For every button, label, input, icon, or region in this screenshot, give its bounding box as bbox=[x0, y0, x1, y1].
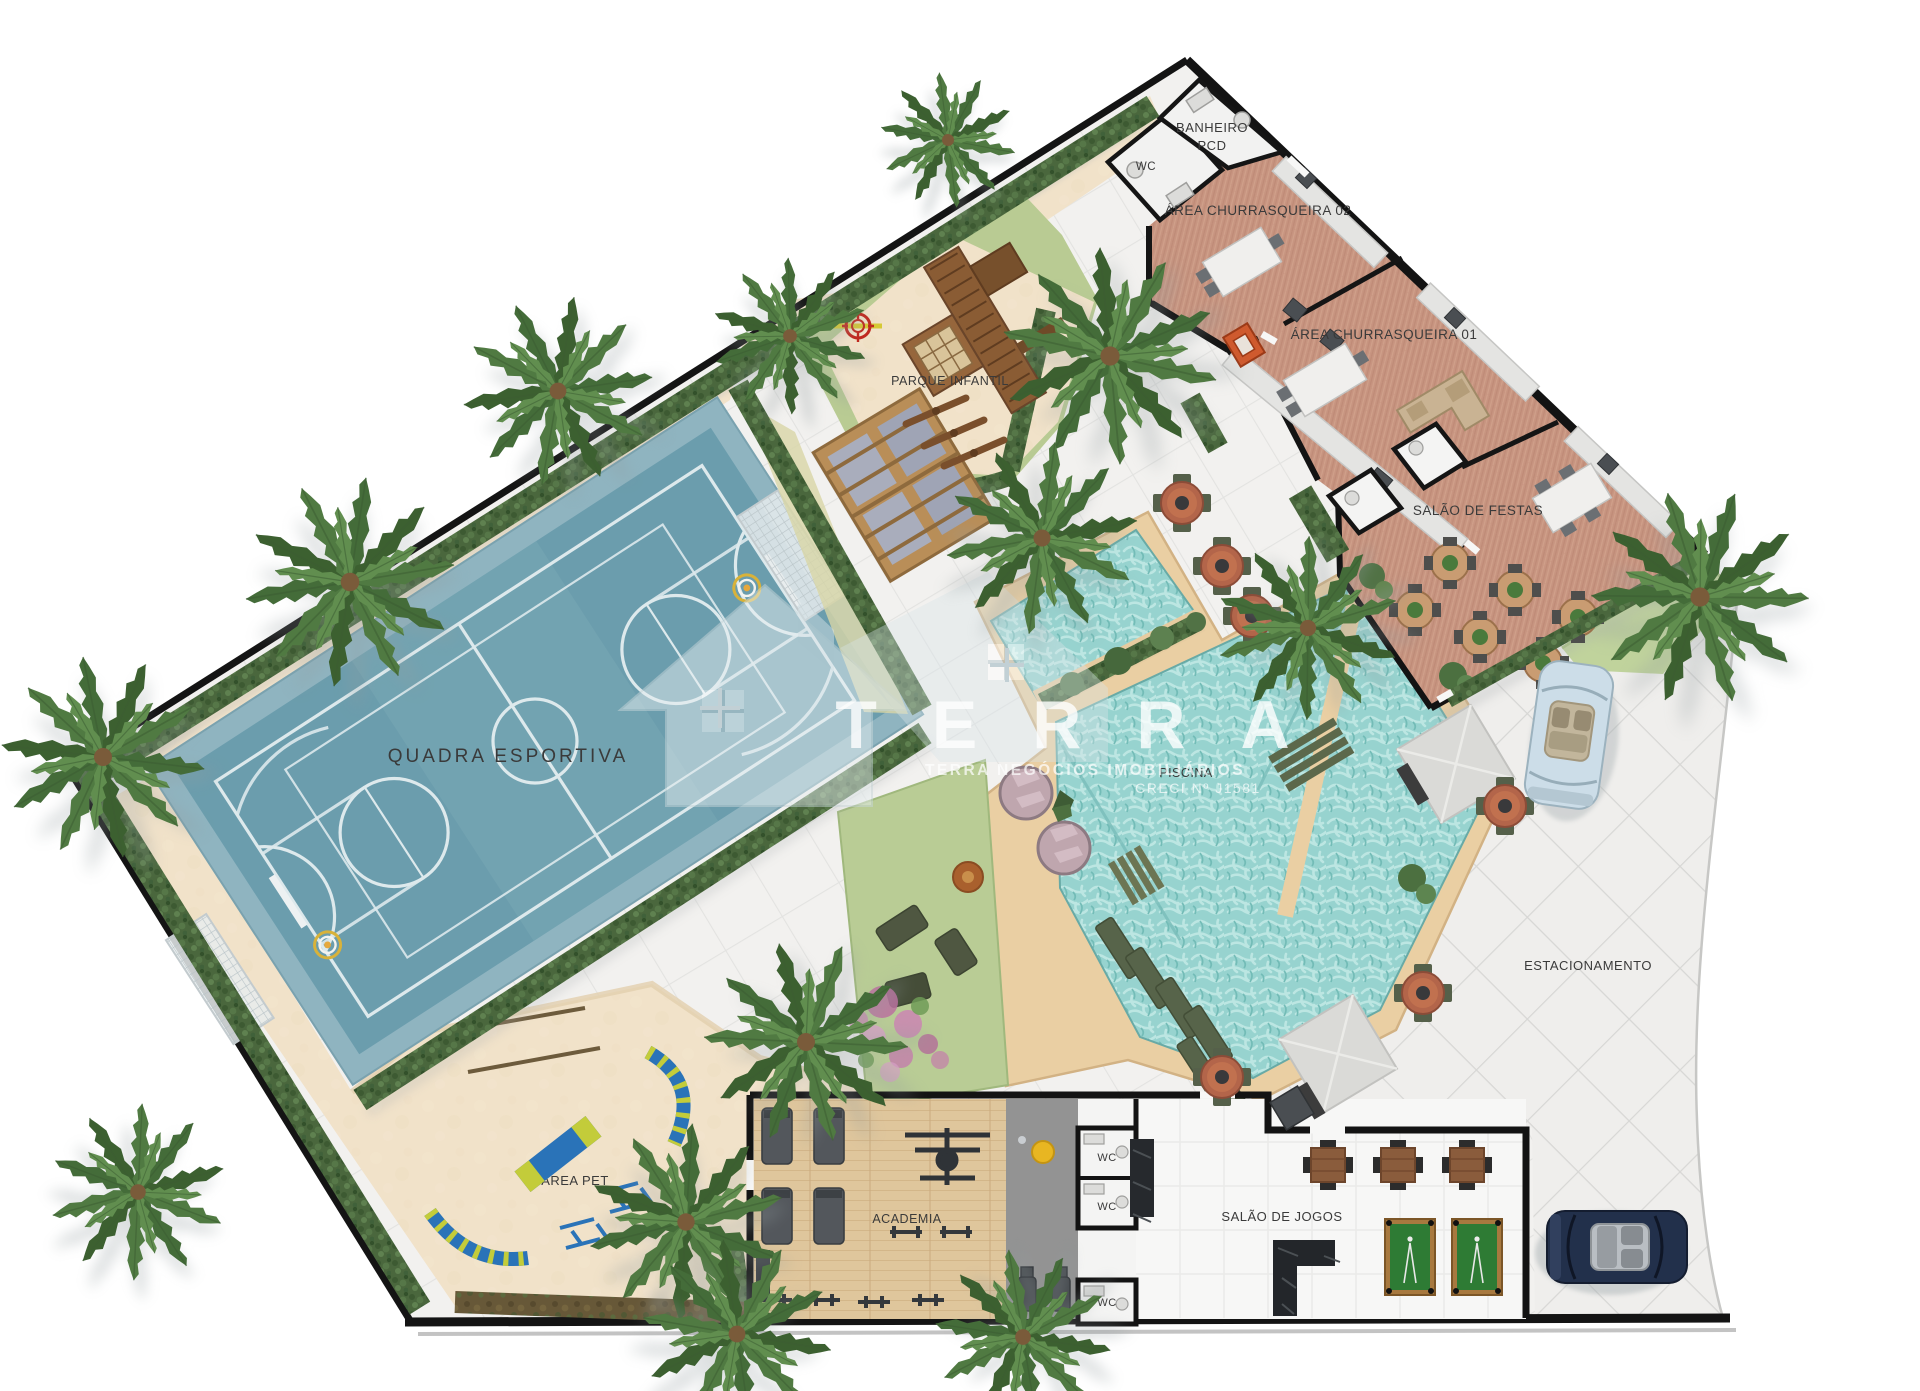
svg-text:CRECI Nº J1581: CRECI Nº J1581 bbox=[1135, 780, 1261, 796]
svg-text:WC: WC bbox=[1136, 161, 1156, 173]
svg-text:ÁREA CHURRASQUEIRA 02: ÁREA CHURRASQUEIRA 02 bbox=[1165, 203, 1352, 218]
svg-text:ÁREA CHURRASQUEIRA 01: ÁREA CHURRASQUEIRA 01 bbox=[1291, 327, 1478, 342]
svg-text:BANHEIRO: BANHEIRO bbox=[1176, 120, 1248, 135]
svg-text:ACADEMIA: ACADEMIA bbox=[872, 1212, 941, 1226]
svg-text:PCD: PCD bbox=[1198, 138, 1227, 153]
svg-text:PARQUE INFANTIL: PARQUE INFANTIL bbox=[891, 374, 1009, 388]
svg-text:WC: WC bbox=[1097, 1201, 1116, 1213]
svg-text:TERRA NEGÓCIOS IMOBILIÁRIOS: TERRA NEGÓCIOS IMOBILIÁRIOS bbox=[925, 761, 1245, 779]
svg-text:WC: WC bbox=[1097, 1297, 1116, 1309]
svg-text:ESTACIONAMENTO: ESTACIONAMENTO bbox=[1524, 958, 1652, 973]
svg-text:TERRA: TERRA bbox=[835, 687, 1344, 763]
svg-text:QUADRA ESPORTIVA: QUADRA ESPORTIVA bbox=[388, 746, 629, 767]
svg-text:WC: WC bbox=[1097, 1152, 1116, 1164]
svg-text:SALÃO DE JOGOS: SALÃO DE JOGOS bbox=[1221, 1209, 1342, 1224]
svg-text:SALÃO DE FESTAS: SALÃO DE FESTAS bbox=[1413, 503, 1543, 518]
